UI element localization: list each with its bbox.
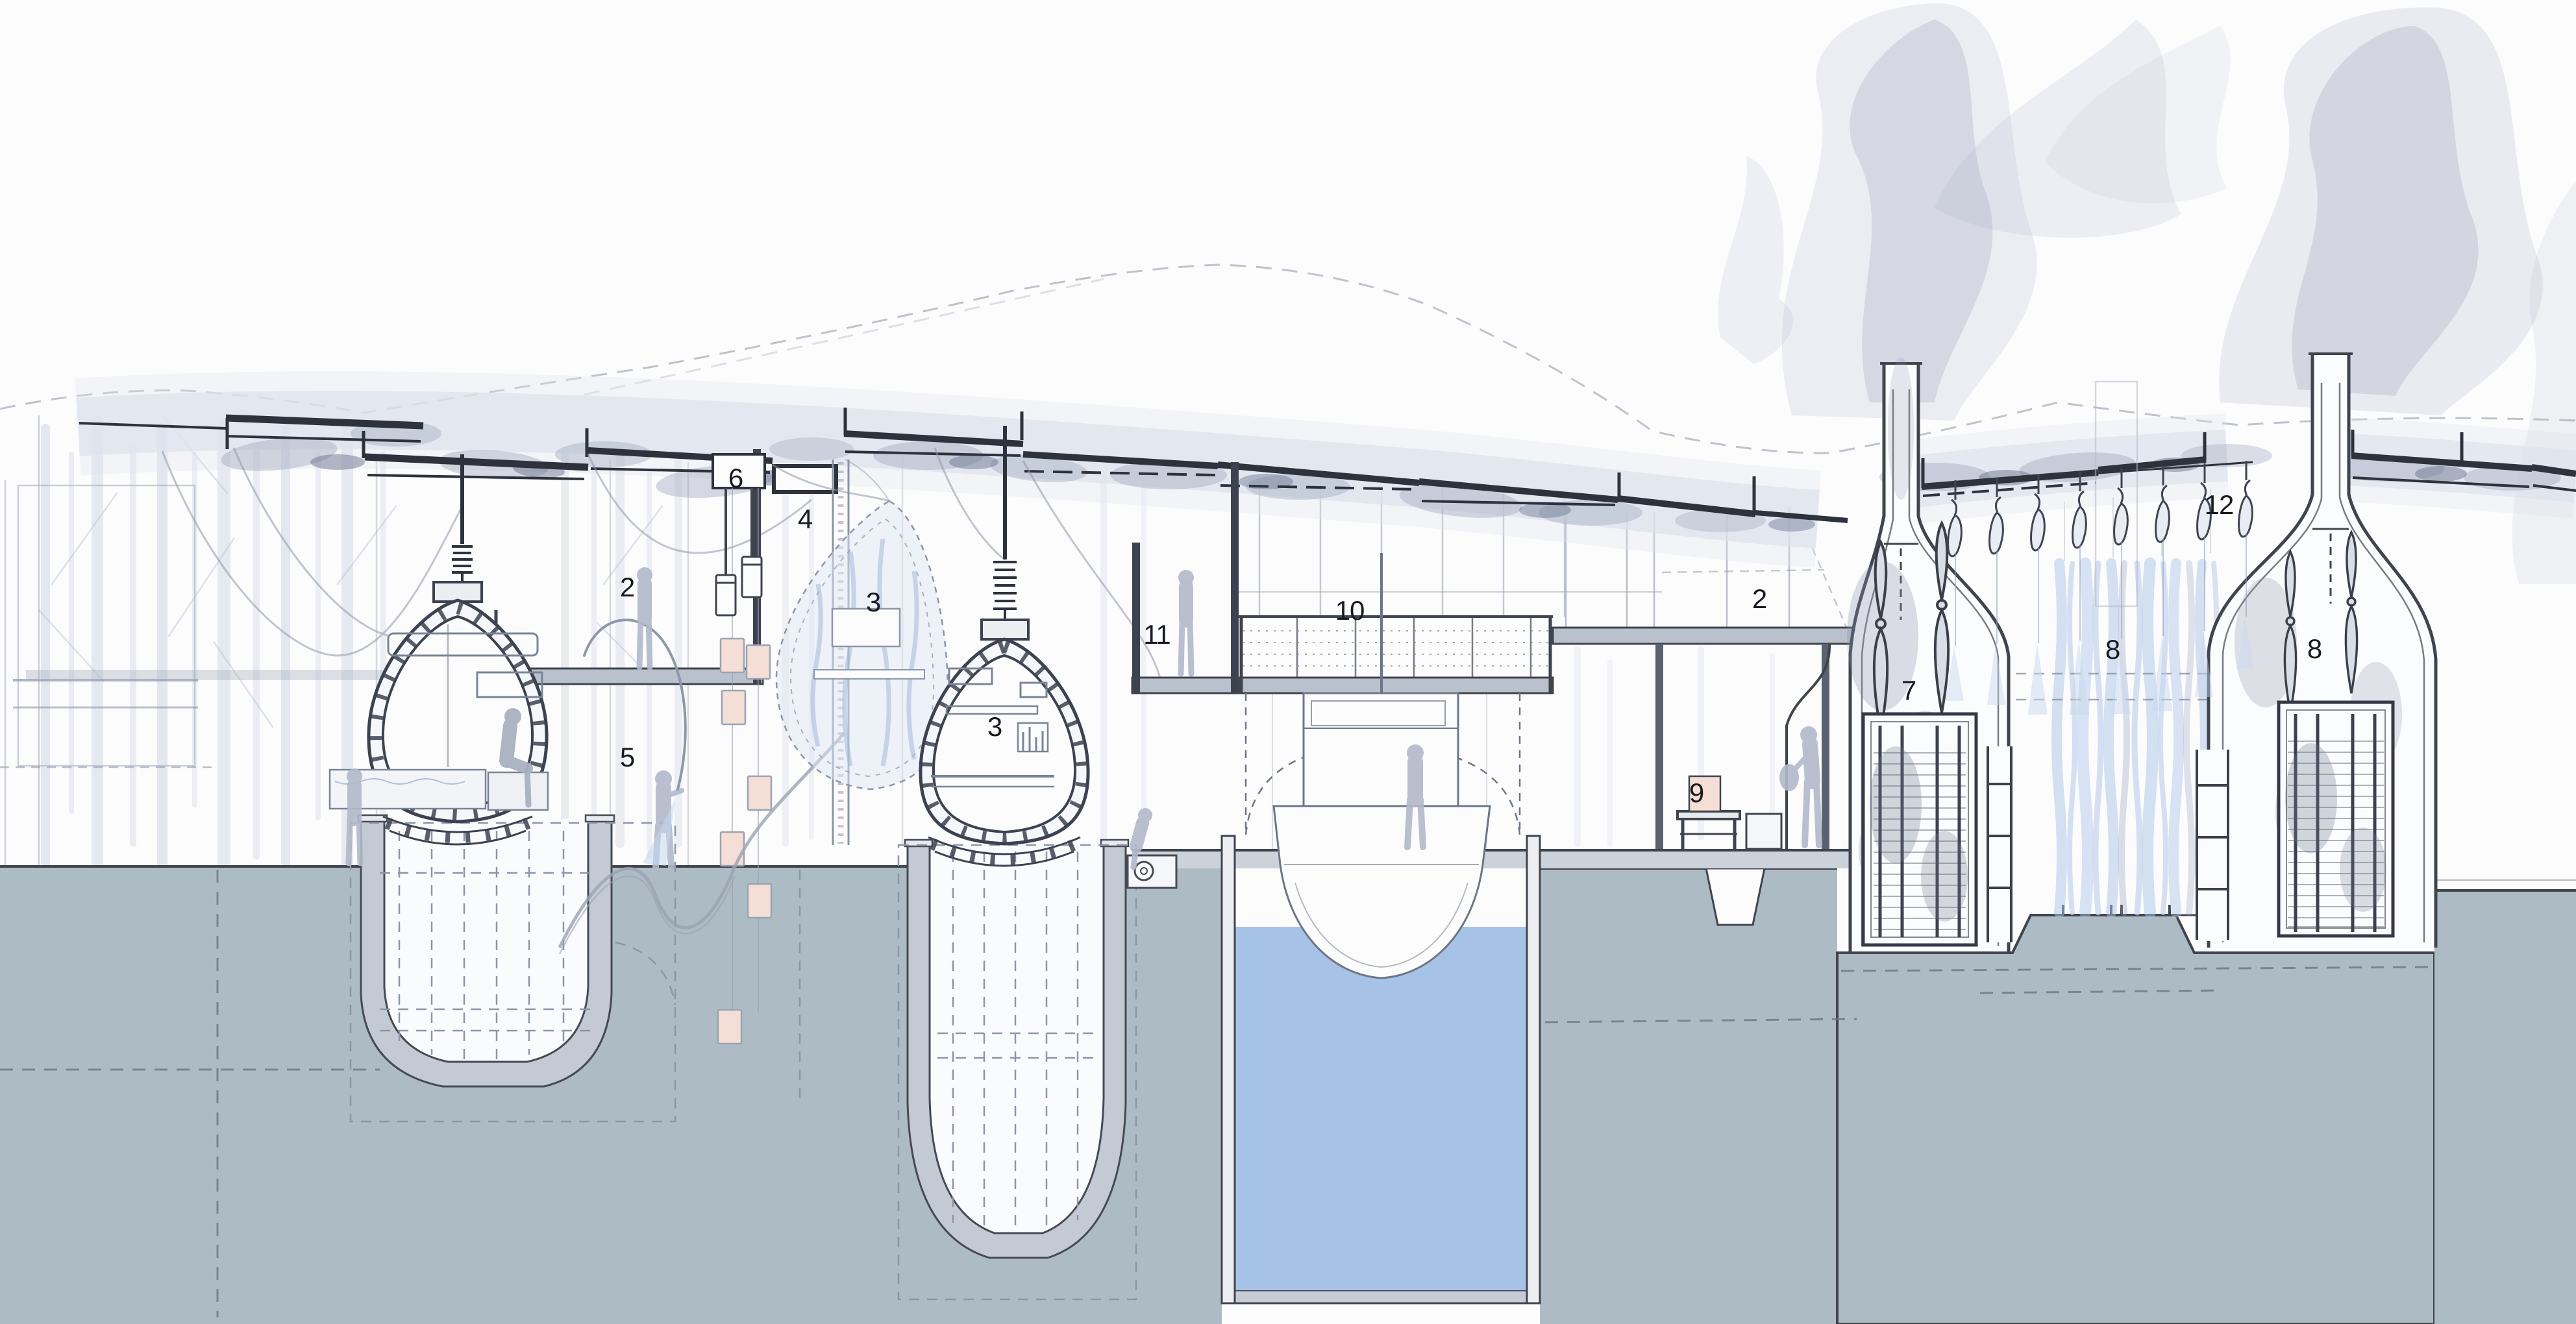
- room2-right-slab: [1553, 628, 1870, 644]
- callout-2: 2: [620, 574, 634, 601]
- callout-8: 8: [2307, 635, 2322, 663]
- callout-12: 12: [2205, 491, 2234, 519]
- pool-wall-right: [1527, 836, 1540, 1303]
- hall-floor: [1132, 850, 1850, 868]
- callout-8: 8: [2105, 636, 2120, 663]
- boat-cabin: [1304, 693, 1458, 806]
- callout-5: 5: [620, 744, 634, 771]
- room11-slab: [1132, 678, 1239, 693]
- right-room-post: [1655, 644, 1663, 850]
- mezzanine-slab: [1239, 678, 1553, 693]
- callout-9: 9: [1689, 779, 1703, 807]
- callout-6: 6: [728, 465, 743, 492]
- ground-far-right: [2434, 890, 2576, 1324]
- callout-2: 2: [1752, 585, 1766, 613]
- drawing-canvas: [0, 0, 2576, 1324]
- room11-right-wall: [1231, 462, 1239, 693]
- pool-bottom: [1235, 1290, 1527, 1303]
- pit1-interior: [384, 819, 588, 1062]
- section-drawing: 26433511102978128: [0, 0, 2576, 1324]
- pod2-top-plate: [982, 620, 1028, 639]
- callout-11: 11: [1143, 621, 1170, 648]
- comb-wall-left: [1987, 746, 2014, 942]
- pool-water: [1235, 927, 1527, 1290]
- ground-tower-yard: [1837, 915, 2434, 1324]
- pool-wall-left: [1222, 836, 1235, 1303]
- callout-4: 4: [798, 506, 812, 533]
- room11-left-wall: [1132, 543, 1140, 693]
- callout-3: 3: [987, 713, 1002, 741]
- ground-mid-right: [1540, 868, 1837, 1324]
- callout-3: 3: [866, 589, 880, 616]
- tower2-tank: [2279, 702, 2393, 936]
- comb-wall-right: [2196, 750, 2229, 941]
- callout-10: 10: [1335, 597, 1365, 624]
- tower1-tank: [1863, 714, 1976, 945]
- callout-7: 7: [1901, 677, 1916, 704]
